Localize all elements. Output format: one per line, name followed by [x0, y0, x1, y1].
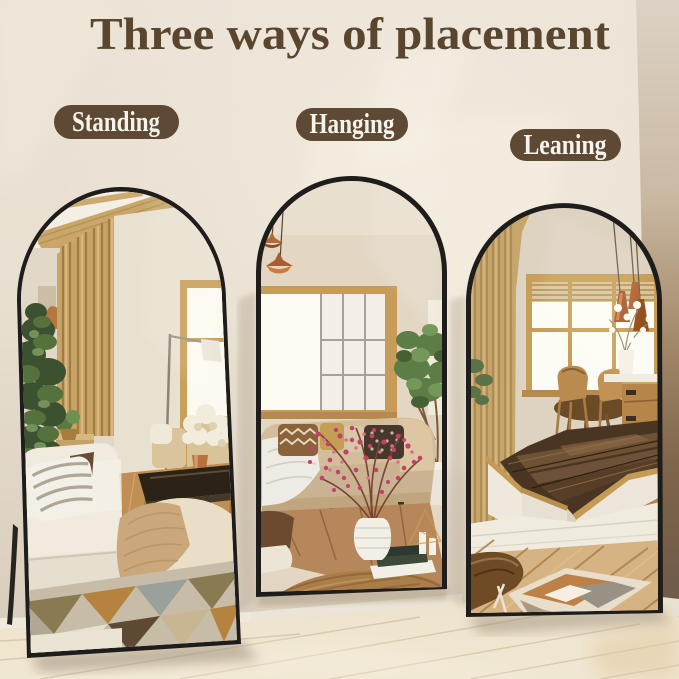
svg-text:Standing: Standing: [72, 107, 160, 138]
svg-text:Leaning: Leaning: [524, 130, 607, 161]
svg-text:Three ways of placement: Three ways of placement: [90, 8, 611, 59]
svg-text:Hanging: Hanging: [310, 109, 395, 140]
